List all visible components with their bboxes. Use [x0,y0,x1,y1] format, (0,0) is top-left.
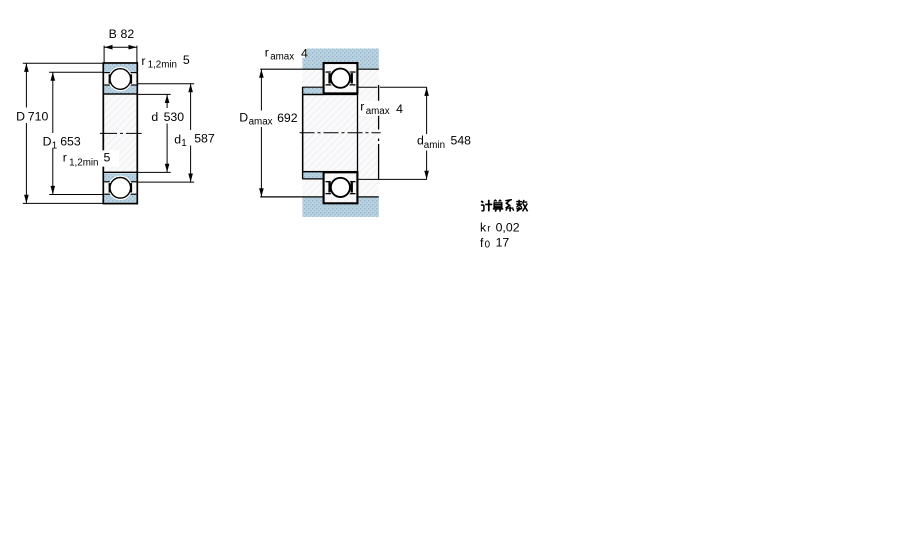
svg-text:1: 1 [181,138,186,149]
svg-text:530: 530 [164,110,185,124]
svg-text:1,2min: 1,2min [148,59,177,70]
svg-text:82: 82 [121,27,135,41]
svg-text:17: 17 [496,236,510,250]
svg-text:d: d [151,110,158,124]
svg-text:amax: amax [366,106,390,117]
svg-text:0: 0 [485,240,491,251]
svg-text:amin: amin [424,140,445,151]
svg-text:710: 710 [28,109,49,123]
svg-text:5: 5 [104,151,111,165]
svg-text:B: B [109,27,117,41]
svg-text:r: r [63,151,67,165]
svg-text:amax: amax [270,52,294,63]
svg-text:653: 653 [60,135,81,149]
svg-text:5: 5 [183,53,190,67]
svg-text:587: 587 [194,131,215,145]
svg-text:0,02: 0,02 [496,220,520,234]
svg-text:4: 4 [396,102,403,116]
svg-text:D: D [43,135,52,149]
svg-text:692: 692 [277,111,298,125]
svg-text:D: D [16,109,25,123]
svg-text:f: f [480,236,484,250]
svg-text:k: k [480,220,487,234]
svg-text:r: r [265,46,269,60]
svg-text:1: 1 [52,140,57,151]
svg-text:4: 4 [301,46,308,60]
svg-text:r: r [360,100,364,114]
svg-text:D: D [239,111,248,125]
svg-text:amax: amax [249,117,273,128]
svg-text:r: r [141,54,145,68]
svg-text:548: 548 [451,133,472,147]
svg-text:1,2min: 1,2min [69,157,98,168]
